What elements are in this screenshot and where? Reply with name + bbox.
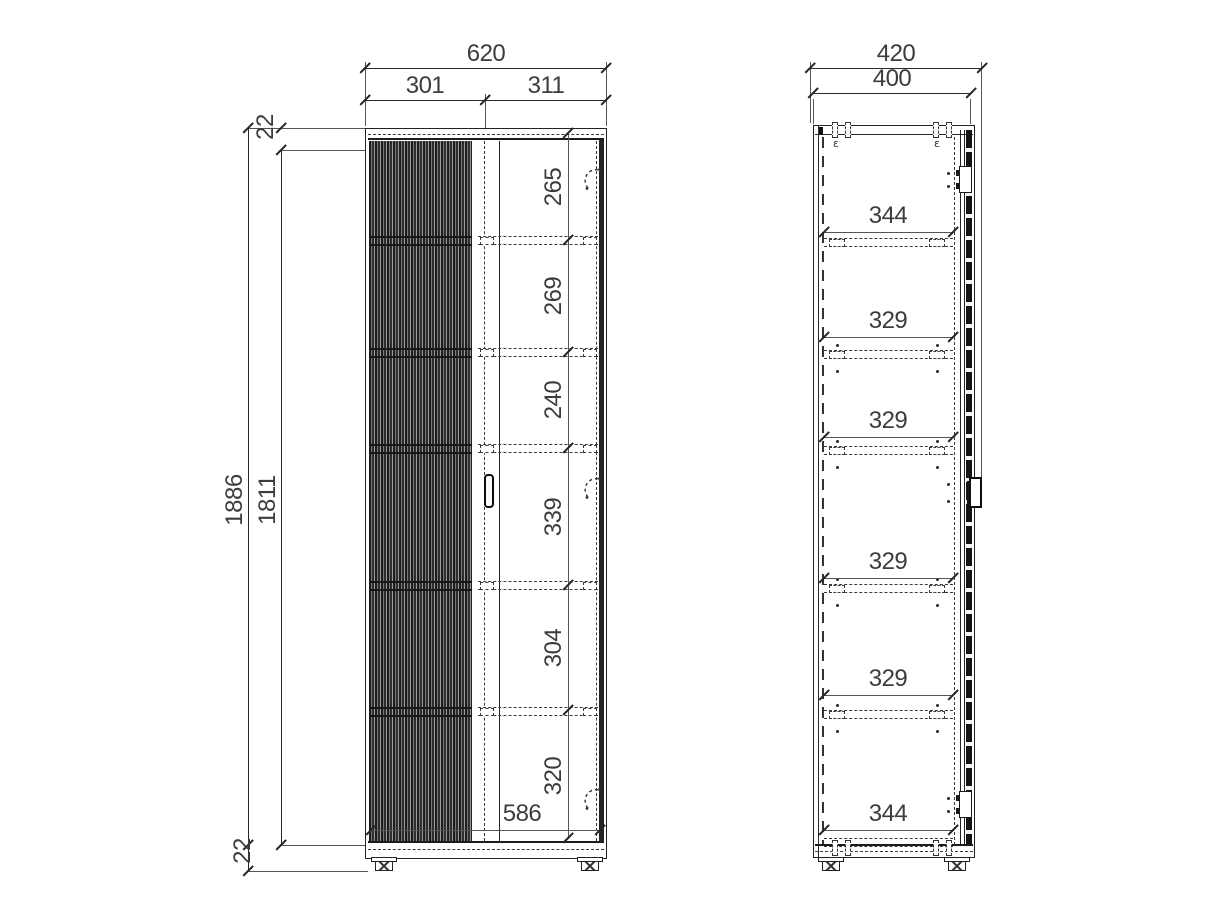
shelf-bracket-icon <box>829 239 845 247</box>
bracket-pin <box>933 122 939 138</box>
pin-hole-dot <box>936 604 939 607</box>
pin-hole-dot <box>836 604 839 607</box>
bracket-pin <box>832 840 838 856</box>
pin-hole-dot <box>936 440 939 443</box>
handle-tab <box>967 499 971 504</box>
dim-label-total-depth: 420 <box>846 40 946 68</box>
pin-hole-dot <box>836 344 839 347</box>
pin-hole-dot <box>836 466 839 469</box>
dim-line-shelf-depth <box>824 578 953 579</box>
shelf-bracket-icon <box>929 239 945 247</box>
pin-hole-dot <box>836 440 839 443</box>
dim-label-shelf-depth-2: 329 <box>838 307 938 335</box>
dim-label-body-depth: 400 <box>842 65 942 93</box>
hanger-bracket-icon: ɛ <box>832 122 854 154</box>
extension-line <box>813 99 814 124</box>
dim-label-shelf-depth-4: 329 <box>838 548 938 576</box>
extension-line-to-handle <box>981 62 982 477</box>
pin-hole-dot <box>936 704 939 707</box>
shelf-bracket-icon <box>929 585 945 593</box>
dim-line-shelf-depth <box>824 232 953 233</box>
pin-hole-dot <box>936 344 939 347</box>
pin-hole-dot <box>947 500 950 503</box>
dim-label-shelf-depth-6: 344 <box>838 800 938 828</box>
dim-line-shelf-depth <box>824 695 953 696</box>
hinge-tab <box>956 183 960 189</box>
front-frame-line <box>960 130 961 845</box>
hinge-tab <box>956 170 960 176</box>
hanger-bracket-icon: ɛ <box>933 122 955 154</box>
pin-hole-dot <box>836 704 839 707</box>
shelf-bracket-icon <box>929 351 945 359</box>
dim-label-shelf-depth-5: 329 <box>838 665 938 693</box>
foot-icon <box>944 857 970 871</box>
hinge-block-icon <box>959 166 972 193</box>
extension-line <box>970 99 971 124</box>
hinge-tab <box>956 808 960 814</box>
bracket-pin <box>946 840 952 856</box>
front-frame-line <box>964 130 965 845</box>
handle-tab <box>967 490 971 495</box>
hardware-mark: ɛ <box>833 137 839 150</box>
hinge-tab <box>956 795 960 801</box>
shelf-bracket-icon <box>829 447 845 455</box>
door-handle-side <box>969 477 982 508</box>
shelf-bracket-icon <box>829 585 845 593</box>
dim-line-body-depth <box>813 93 971 94</box>
bracket-pin <box>832 122 838 138</box>
pin-hole-dot <box>836 730 839 733</box>
hinge-block-icon <box>959 791 972 818</box>
shelf-bracket-icon <box>829 711 845 719</box>
back-corner-block <box>819 127 823 135</box>
front-gap-hidden-line <box>954 137 955 845</box>
pin-hole-dot <box>947 810 950 813</box>
bracket-pin <box>845 840 851 856</box>
pin-hole-dot <box>947 483 950 486</box>
pin-hole-dot <box>947 797 950 800</box>
foot-leg <box>948 861 966 871</box>
shelf-bracket-icon <box>929 711 945 719</box>
bracket-pin <box>933 840 939 856</box>
foot-leg <box>822 861 840 871</box>
dim-label-shelf-depth-1: 344 <box>838 202 938 230</box>
pin-hole-dot <box>947 172 950 175</box>
bracket-pin <box>845 122 851 138</box>
technical-drawing-canvas: 620 301 311 1886 1811 22 22 <box>0 0 1232 924</box>
foot-icon <box>818 857 844 871</box>
shelf-bracket-icon <box>929 447 945 455</box>
pin-hole-dot <box>836 370 839 373</box>
pin-hole-dot <box>936 466 939 469</box>
bracket-pin <box>946 122 952 138</box>
shelf-bracket-icon <box>829 351 845 359</box>
dim-line-shelf-depth <box>824 437 953 438</box>
side-view: 420 400 ɛ ɛ <box>0 0 1232 924</box>
pin-hole-dot <box>947 185 950 188</box>
dim-line-shelf-depth <box>824 337 953 338</box>
pin-hole-dot <box>936 370 939 373</box>
back-panel-hidden-line <box>822 137 824 845</box>
handle-tab <box>967 481 971 486</box>
hardware-mark: ɛ <box>934 137 940 150</box>
pin-hole-dot <box>936 730 939 733</box>
dim-label-shelf-depth-3: 329 <box>838 407 938 435</box>
